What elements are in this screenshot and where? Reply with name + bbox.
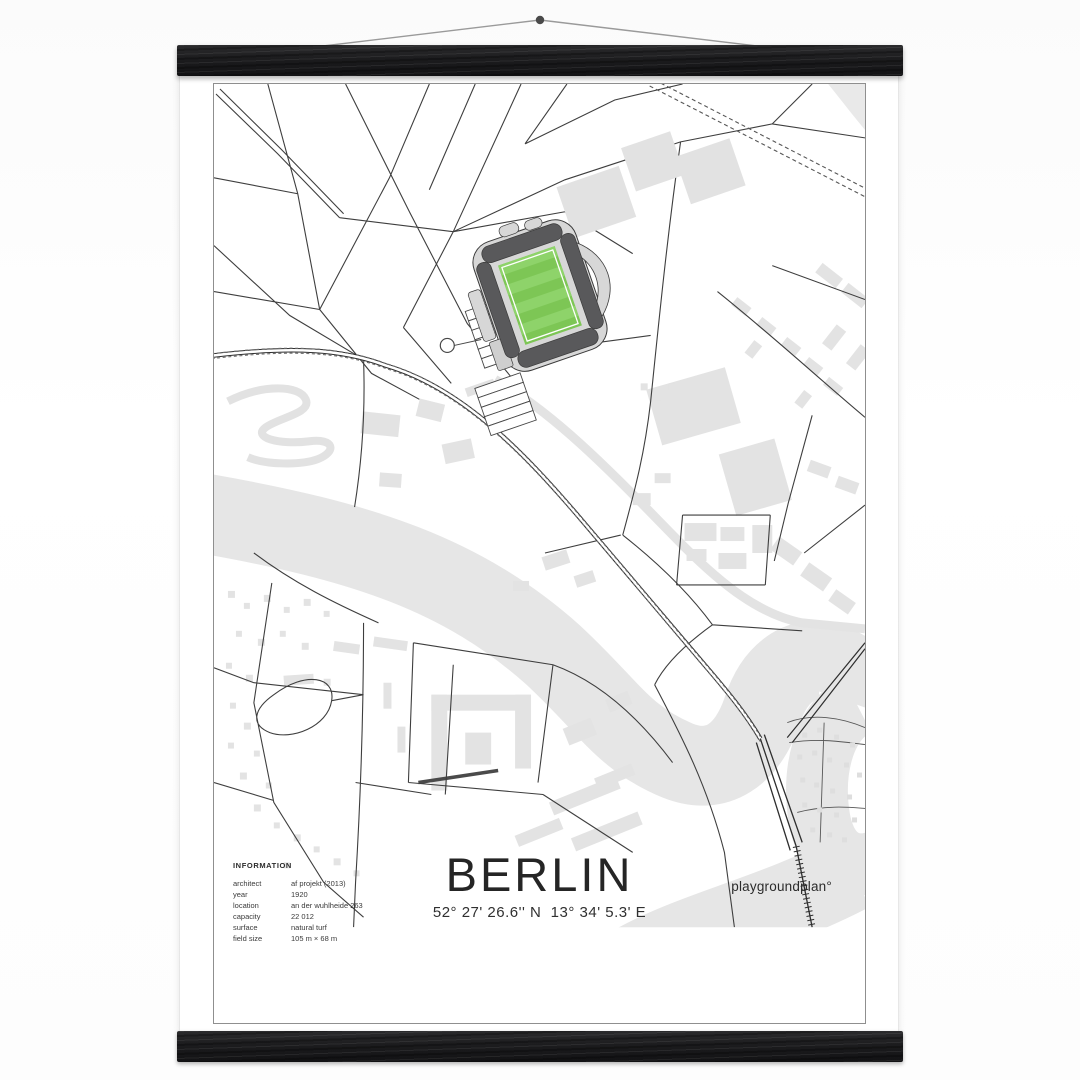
info-label: field size (233, 933, 291, 944)
info-value: 105 m × 68 m (291, 933, 337, 944)
buildings-bottom-left (226, 591, 408, 876)
info-row: field size 105 m × 68 m (233, 933, 453, 944)
buildings-right (633, 263, 865, 615)
hanger-bar-top (177, 45, 903, 76)
wall-line (418, 771, 498, 783)
creek (228, 388, 330, 463)
info-label: surface (233, 922, 291, 933)
training-pitches (551, 114, 745, 244)
map-frame: INFORMATION architect af projekt (2013) … (213, 83, 866, 1024)
string-knot (536, 16, 544, 24)
hanger-bar-bottom (177, 1031, 903, 1062)
brand-logo: playgroundplan° (731, 879, 832, 894)
poster-mockup-scene: INFORMATION architect af projekt (2013) … (0, 0, 1080, 1080)
roundabout-circle (440, 338, 454, 352)
poster-coordinates: 52° 27' 26.6'' N 13° 34' 5.3' E (214, 904, 865, 921)
light-swath (828, 84, 865, 130)
info-row: surface natural turf (233, 922, 453, 933)
info-value: natural turf (291, 922, 327, 933)
railway-ne (650, 84, 865, 198)
